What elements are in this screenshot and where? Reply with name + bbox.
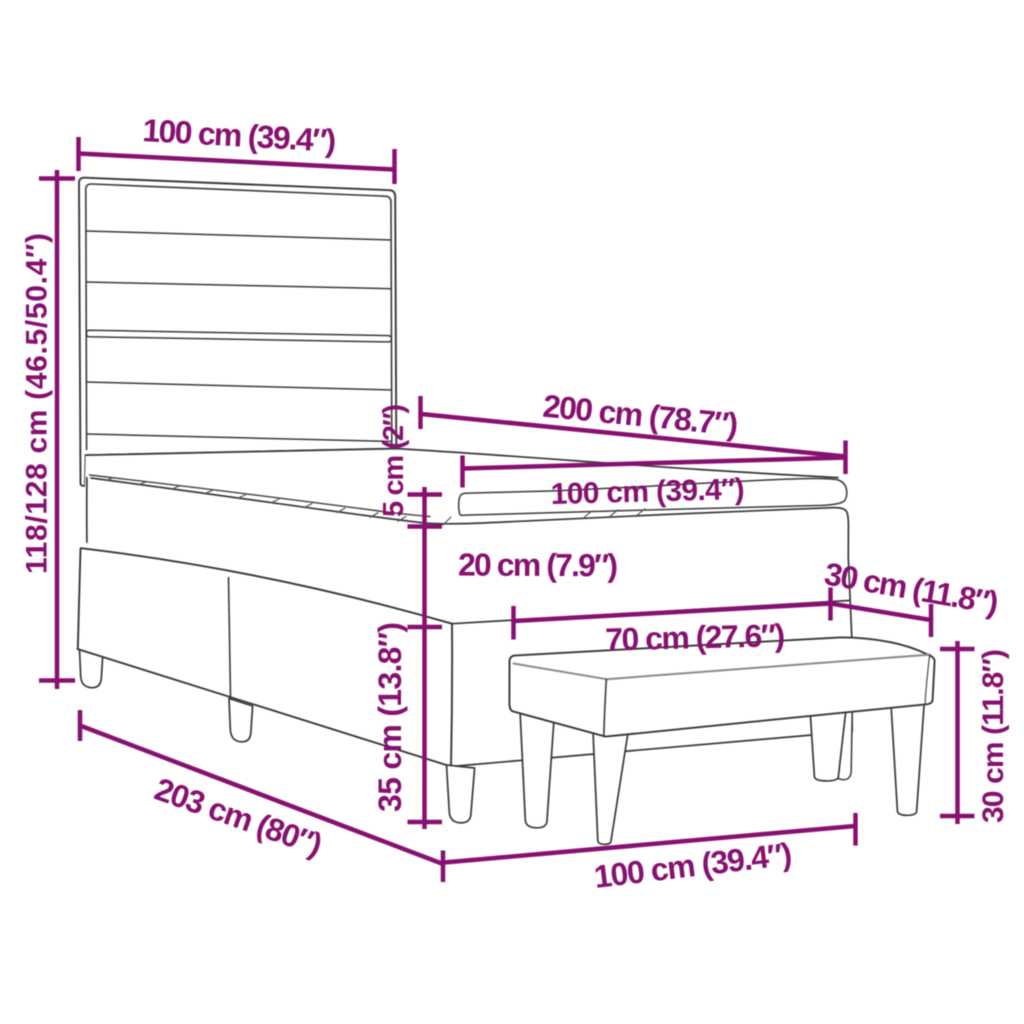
svg-text:70 cm (27.6″): 70 cm (27.6″) (605, 617, 786, 657)
svg-text:20 cm (7.9″): 20 cm (7.9″) (458, 547, 618, 584)
svg-text:5 cm (2″): 5 cm (2″) (378, 404, 410, 517)
svg-text:30 cm (11.8″): 30 cm (11.8″) (977, 649, 1010, 823)
svg-text:118/128 cm (46.5/50.4″): 118/128 cm (46.5/50.4″) (21, 233, 54, 574)
svg-text:35 cm (13.8″): 35 cm (13.8″) (372, 622, 408, 812)
svg-text:100 cm (39.4″): 100 cm (39.4″) (550, 473, 745, 511)
